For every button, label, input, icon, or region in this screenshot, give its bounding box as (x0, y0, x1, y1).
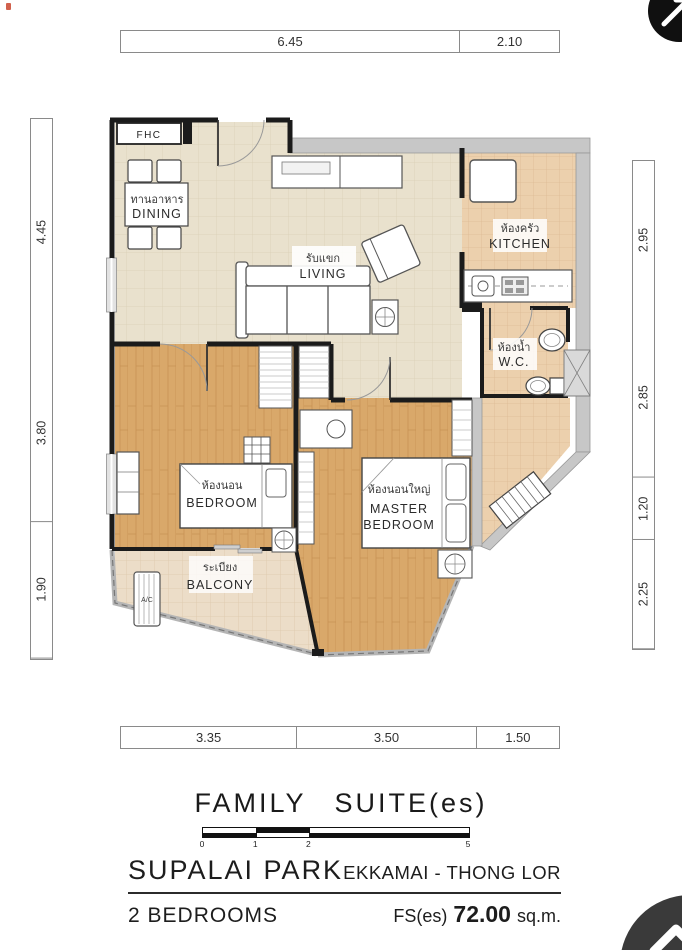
wall-stub-fhc (183, 118, 192, 144)
dim-right-1: 2.95 (633, 161, 654, 318)
side-table-fan (372, 300, 398, 334)
balcony-ac-unit: A/C (134, 572, 160, 626)
project-name: SUPALAI PARK (128, 855, 343, 886)
scale-bar (202, 827, 470, 838)
scale-tick: 5 (466, 839, 471, 849)
kitchen-counter (464, 270, 572, 302)
bedroom-dresser (117, 452, 139, 514)
wc-sink (539, 329, 565, 351)
wc-label-en: W.C. (498, 355, 529, 369)
bedroom-shelf (244, 437, 270, 463)
dimension-bar-top: 6.45 2.10 (120, 30, 560, 53)
dining-label-en: DINING (132, 207, 182, 221)
scale-segment (256, 828, 309, 837)
scale-tick: 1 (253, 839, 258, 849)
master-label-th: ห้องนอนใหญ่ (368, 483, 431, 496)
dim-bottom-3: 1.50 (476, 727, 559, 748)
wc-toilet (526, 377, 564, 395)
dim-bottom-1: 3.35 (121, 727, 296, 748)
fridge (470, 160, 516, 202)
master-desk (300, 410, 352, 448)
area-value: 72.00 (453, 901, 511, 928)
floor-plan: FHC (105, 110, 605, 670)
dim-right-3: 1.20 (633, 478, 654, 540)
dimension-bar-bottom: 3.35 3.50 1.50 (120, 726, 560, 749)
dim-right-2: 2.85 (633, 318, 654, 478)
bedroom-label-th: ห้องนอน (202, 480, 243, 492)
balcony-label-th: ระเบียง (203, 561, 237, 574)
kitchen-label-en: KITCHEN (489, 237, 551, 251)
project-location: EKKAMAI - THONG LOR (343, 862, 561, 884)
unit-area: FS(es) 72.00 sq.m. (393, 901, 561, 928)
unit-type: 2 BEDROOMS (128, 904, 278, 928)
title-block: SUPALAI PARK EKKAMAI - THONG LOR 2 BEDRO… (128, 855, 561, 928)
dim-left-3: 1.90 (31, 522, 52, 659)
scale-segment (309, 828, 469, 837)
scale-tick: 2 (306, 839, 311, 849)
dimension-bar-left: 4.45 3.80 1.90 (30, 118, 53, 660)
balcony-label-en: BALCONY (187, 578, 254, 592)
area-prefix: FS(es) (393, 906, 447, 927)
master-fan (438, 550, 472, 578)
corridor-shelf (298, 452, 314, 544)
bedroom-fan (272, 528, 296, 552)
dim-bottom-2: 3.50 (296, 727, 476, 748)
ac-label: A/C (141, 597, 153, 604)
dim-right-4: 2.25 (633, 540, 654, 649)
window-left-lower (107, 454, 117, 514)
master-wardrobe (452, 400, 472, 456)
dim-top-2: 2.10 (459, 31, 559, 52)
chevron-up-icon (620, 895, 682, 950)
wall-master-right (472, 398, 482, 546)
dining-label-th: ทานอาหาร (130, 194, 183, 206)
red-artifact (6, 3, 11, 10)
floorplan-page: 6.45 2.10 4.45 3.80 1.90 2.95 2.85 1.20 … (0, 0, 682, 950)
living-label-en: LIVING (300, 267, 347, 281)
dim-left-2: 3.80 (31, 345, 52, 522)
kitchen-label-th: ห้องครัว (501, 223, 540, 235)
master-label-en2: BEDROOM (363, 518, 435, 532)
plan-title: FAMILY SUITE(es) (0, 788, 682, 819)
spec-row: 2 BEDROOMS FS(es) 72.00 sq.m. (128, 894, 561, 928)
wall-stub-balcony-corner (312, 649, 324, 656)
top-right-action-button[interactable] (648, 0, 682, 42)
window-left-upper (107, 258, 117, 312)
master-label-en1: MASTER (370, 502, 428, 516)
exterior-wall-top (290, 138, 590, 153)
scale-tick: 0 (200, 839, 205, 849)
wall-stub-kitchen (462, 302, 482, 312)
scale-segment (203, 828, 256, 837)
dim-top-1: 6.45 (121, 31, 459, 52)
area-unit: sq.m. (517, 906, 561, 927)
scroll-to-top-button[interactable] (620, 895, 682, 950)
entry-console (272, 156, 402, 188)
project-row: SUPALAI PARK EKKAMAI - THONG LOR (128, 855, 561, 894)
wc-label-th: ห้องน้ำ (498, 339, 531, 354)
dimension-bar-right: 2.95 2.85 1.20 2.25 (632, 160, 655, 650)
bedroom-label-en: BEDROOM (186, 496, 258, 510)
fhc-closet: FHC (117, 123, 181, 144)
arrow-up-right-icon (648, 0, 682, 42)
exterior-wall-right (576, 153, 590, 452)
fhc-label: FHC (136, 130, 161, 141)
scale-ticks: 0 1 2 5 (202, 839, 468, 849)
living-label-th: รับแขก (306, 253, 340, 265)
dim-left-1: 4.45 (31, 119, 52, 345)
shower (564, 350, 590, 396)
